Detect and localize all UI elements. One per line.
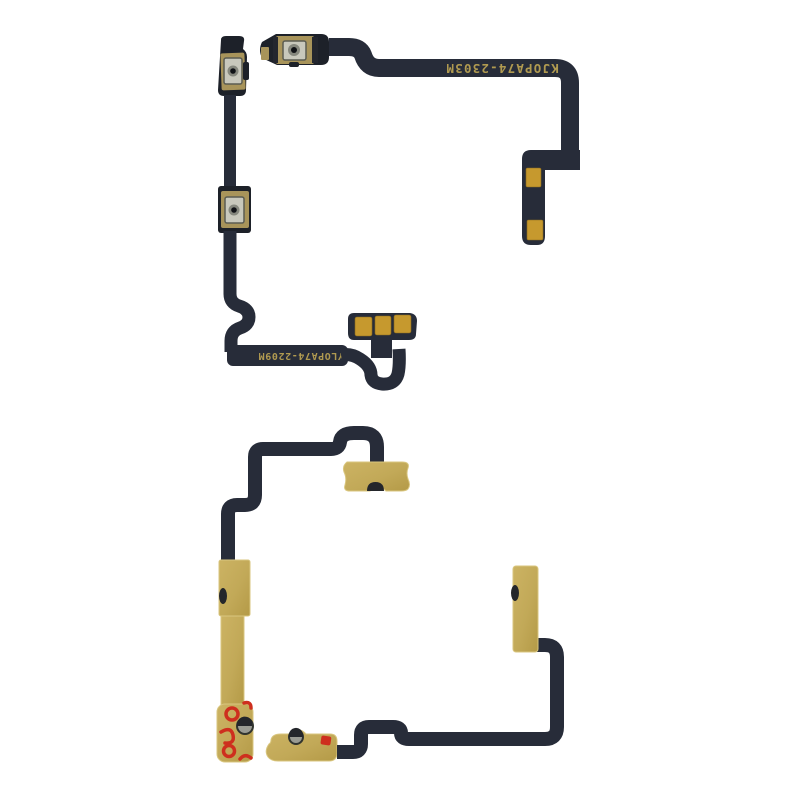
volume-down-button-switch	[218, 186, 251, 233]
dome-shadow	[289, 728, 303, 737]
switch-side-bar	[312, 37, 318, 63]
strip-notch	[511, 585, 519, 601]
adhesive-strip-top	[219, 560, 250, 616]
tail-adhesive-strip	[511, 566, 538, 652]
flex-cables-illustration: KJOPA74-2303M	[0, 0, 800, 800]
volume-flex-ribbon-lower	[230, 231, 249, 352]
front-flex-cable: KJOPA74-2303M	[218, 34, 580, 384]
dome-center	[231, 207, 237, 213]
power-button-adhesive-pad	[343, 462, 409, 491]
switch-side-bar	[273, 37, 278, 63]
dome-center	[230, 68, 236, 74]
power-button-switch	[260, 34, 329, 67]
board-connector	[341, 313, 417, 384]
dome-center	[291, 47, 297, 53]
gold-contact-pad	[526, 168, 541, 187]
back-flex-cable	[217, 433, 557, 762]
adhesive-strip-middle	[221, 616, 244, 706]
strip-notch	[219, 588, 227, 604]
switch-tab	[243, 62, 249, 80]
part-marking-top: KJOPA74-2303M	[445, 61, 558, 76]
back-flex-top-ribbon	[228, 433, 377, 560]
volume-adhesive-strip	[217, 560, 253, 762]
volume-up-button-switch	[218, 36, 249, 96]
connector-stem	[371, 336, 392, 358]
red-adhesive-mark	[320, 735, 331, 745]
bottom-adhesive-piece	[266, 728, 337, 761]
back-flex-bottom-ribbon	[337, 645, 557, 752]
switch-foot	[289, 62, 299, 67]
gold-contact-pad	[527, 220, 543, 240]
gold-contact-pad	[394, 315, 411, 333]
part-marking-bottom: YLOPA74-2209M	[258, 350, 344, 361]
adhesive-strip	[513, 566, 538, 652]
volume-flex-ribbon	[224, 95, 236, 188]
product-photo: KJOPA74-2303M	[0, 0, 800, 800]
bracket-gold-tab	[261, 47, 269, 60]
gold-contact-pad	[375, 316, 391, 335]
gold-contact-pad	[355, 317, 372, 336]
